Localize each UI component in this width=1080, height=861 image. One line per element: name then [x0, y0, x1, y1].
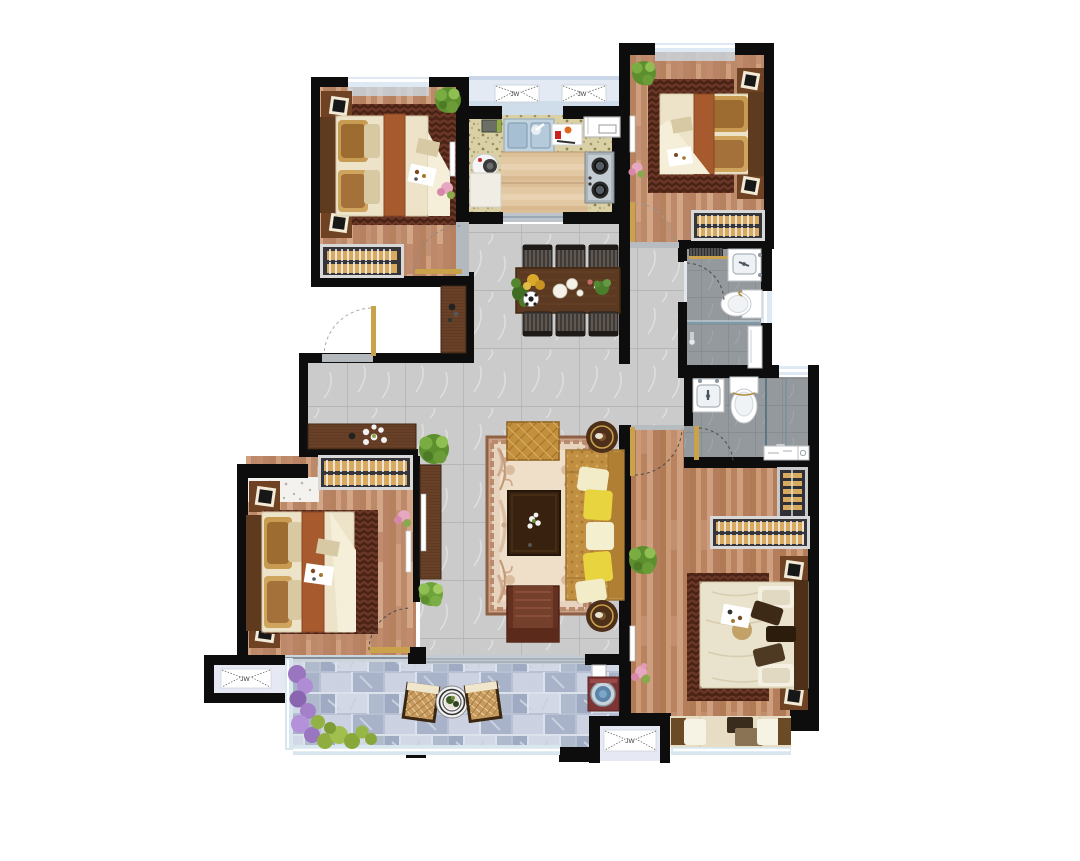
svg-text:JW: JW — [625, 738, 635, 745]
svg-text:JW: JW — [511, 92, 520, 98]
svg-text:JW: JW — [240, 676, 250, 683]
svg-text:JW: JW — [578, 92, 587, 98]
